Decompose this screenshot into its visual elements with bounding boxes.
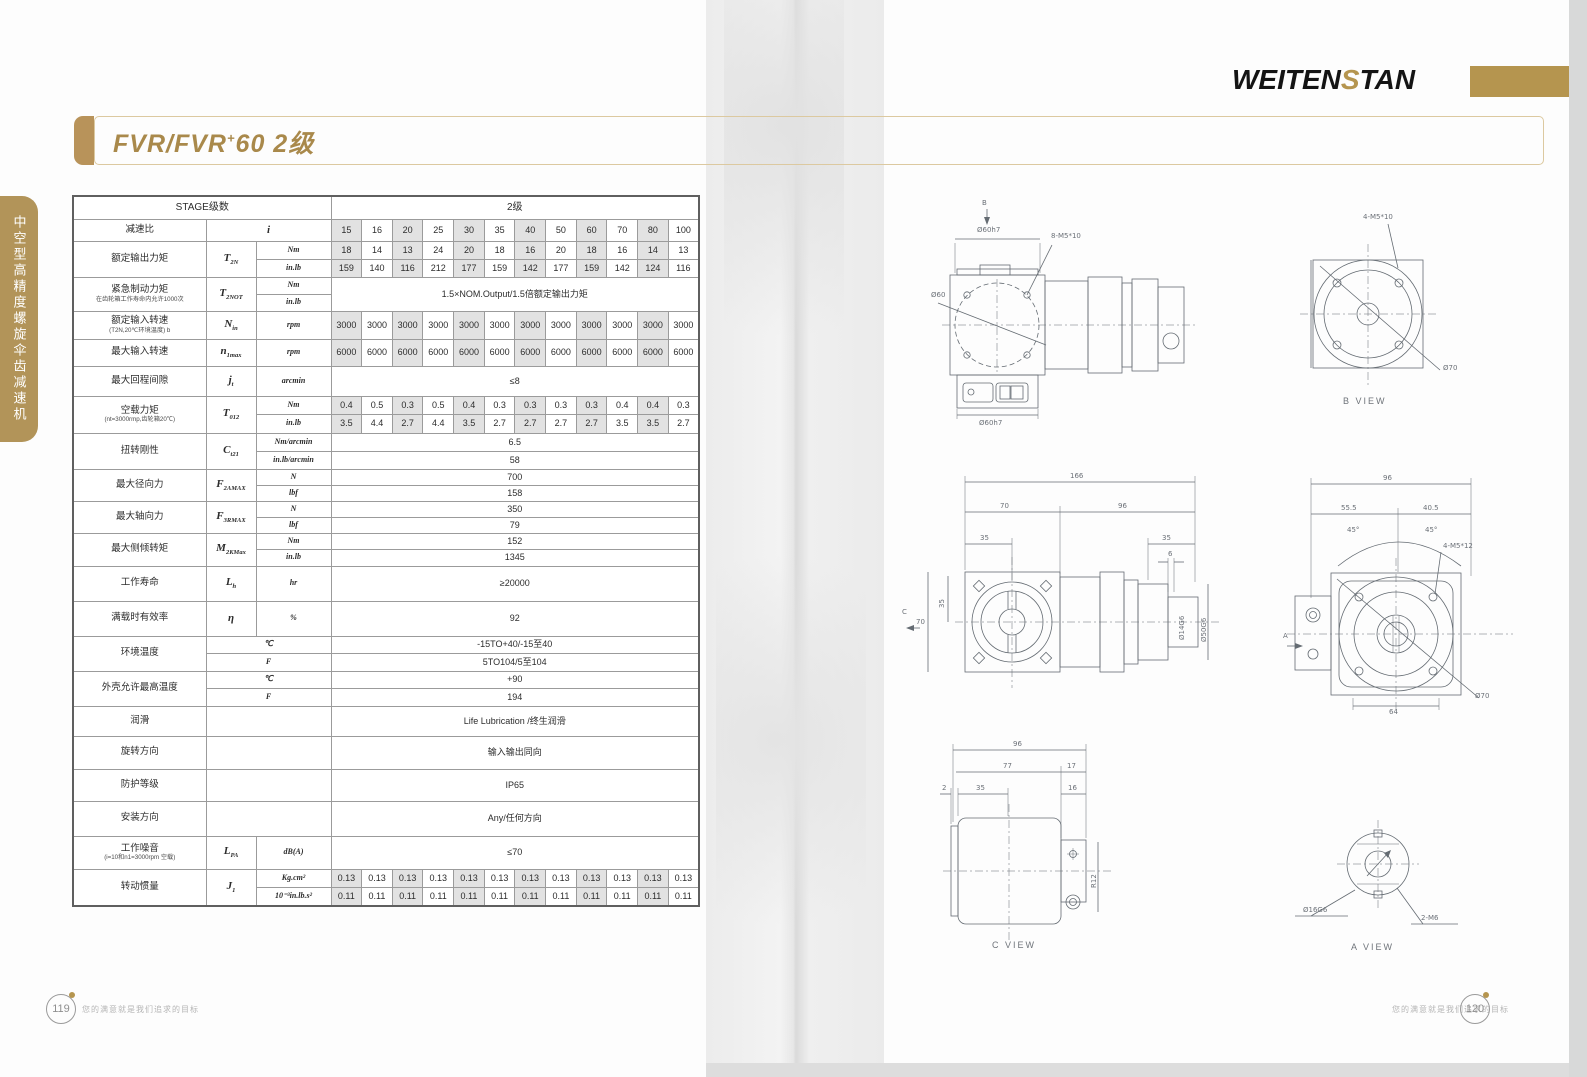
title-accent-bar xyxy=(74,116,94,165)
title-box: FVR/FVR+60 2级 xyxy=(94,116,1544,165)
cell-lbl: 外壳允许最高温度 xyxy=(73,671,206,706)
drawing-side-view: B Ø60h7 8-M5*10 Ø60 Ø60h7 xyxy=(930,195,1260,435)
cell-lbl: 减速比 xyxy=(73,219,206,241)
dia-label: Ø50G6 xyxy=(1200,618,1208,642)
dim-label: 17 xyxy=(1067,762,1076,770)
dim-label: 40.5 xyxy=(1423,504,1439,512)
cell-val: 0.3 xyxy=(576,396,607,414)
cell-val: 0.13 xyxy=(362,869,393,887)
cell-unit: % xyxy=(256,601,331,636)
cell-val: 0.11 xyxy=(576,887,607,906)
cell-unit: rpm xyxy=(256,339,331,366)
cell-val: 2.7 xyxy=(392,414,423,433)
cell-val: 0.13 xyxy=(638,869,669,887)
cell-val: 6000 xyxy=(392,339,423,366)
cell-lbl: 安装方向 xyxy=(73,801,206,836)
cell-val: 142 xyxy=(607,259,638,277)
cell-val: 0.3 xyxy=(515,396,546,414)
cell-val: 0.13 xyxy=(607,869,638,887)
cell-sym: LPA xyxy=(206,836,256,869)
cell-lbl: 最大回程间隙 xyxy=(73,366,206,396)
cell-val: 0.13 xyxy=(331,869,362,887)
cell-unit: lbf xyxy=(256,517,331,533)
cell-unit: Nm xyxy=(256,277,331,294)
cell-val: 20 xyxy=(392,219,423,241)
cell-empty xyxy=(206,769,331,801)
catalog-page: WEITENSTAN FVR/FVR+60 2级 中空型高精度螺旋伞齿减速机 S… xyxy=(0,0,1587,1077)
cell-val: 2.7 xyxy=(484,414,515,433)
drawing-c-view: 96 77 17 2 35 16 R12 C VIEW xyxy=(918,730,1183,962)
cell-empty xyxy=(206,736,331,769)
cell-sym: Lh xyxy=(206,566,256,601)
cell-val: 0.11 xyxy=(362,887,393,906)
cell-val: 14 xyxy=(362,241,393,259)
drawing-b-view: 4-M5*10 Ø70 B VIEW xyxy=(1288,212,1513,412)
cell-val: 18 xyxy=(576,241,607,259)
drawing-dimension-view: 166 70 96 35 35 6 C 70 35 Ø14G6 Ø50G6 xyxy=(900,462,1245,712)
cell-unit: arcmin xyxy=(256,366,331,396)
cell-merged: 1345 xyxy=(331,549,699,566)
cell-val: 0.3 xyxy=(392,396,423,414)
cell-merged: Life Lubrication /终生润滑 xyxy=(331,706,699,736)
cell-val: 0.13 xyxy=(454,869,485,887)
cell-val: 0.4 xyxy=(638,396,669,414)
footer-slogan-left: 您的满意就是我们追求的目标 xyxy=(82,1004,199,1015)
bolt-spec-label: 4-M5*10 xyxy=(1363,213,1393,221)
cell-val: 16 xyxy=(515,241,546,259)
cell-val: 3000 xyxy=(638,311,669,339)
cell-unit: in.lb xyxy=(256,259,331,277)
cell-unit: lbf xyxy=(256,485,331,501)
cell-val: 0.13 xyxy=(668,869,699,887)
cell-merged: 输入输出同向 xyxy=(331,736,699,769)
cell-sym: Nin xyxy=(206,311,256,339)
dim-label: 70 xyxy=(1000,502,1009,510)
cell-merged: ≤70 xyxy=(331,836,699,869)
cell-unit: in.lb xyxy=(256,414,331,433)
cell-val: 16 xyxy=(607,241,638,259)
cell-lbl: 最大侧倾转矩 xyxy=(73,533,206,566)
dim-label: 96 xyxy=(1118,502,1127,510)
cell-unit: F xyxy=(206,688,331,706)
cell-merged: Any/任何方向 xyxy=(331,801,699,836)
cell-val: 0.13 xyxy=(515,869,546,887)
page-number-dot xyxy=(1483,992,1489,998)
cell-merged: 1.5×NOM.Output/1.5倍额定输出力矩 xyxy=(331,277,699,311)
cell-sym: F2AMAX xyxy=(206,469,256,501)
cell-val: 3000 xyxy=(392,311,423,339)
dim-label: 77 xyxy=(1003,762,1012,770)
cell-val: 6000 xyxy=(423,339,454,366)
cell-val: 3.5 xyxy=(454,414,485,433)
dim-label: 64 xyxy=(1389,708,1398,716)
cell-unit: Nm/arcmin xyxy=(256,433,331,451)
logo-text: WEITEN xyxy=(1232,64,1341,95)
angle-label: 45° xyxy=(1347,526,1359,534)
cell-val: 6000 xyxy=(484,339,515,366)
cell-val: 20 xyxy=(546,241,577,259)
cell-val: 3.5 xyxy=(638,414,669,433)
cell-lbl: 工作寿命 xyxy=(73,566,206,601)
cell-lbl: 转动惯量 xyxy=(73,869,206,906)
sidebar-vertical-label: 中空型高精度螺旋伞齿减速机 xyxy=(10,215,29,423)
cell-val: 60 xyxy=(576,219,607,241)
cell-merged: 5TO104/5至104 xyxy=(331,653,699,671)
cell-val: 0.4 xyxy=(607,396,638,414)
cell-sym: J1 xyxy=(206,869,256,906)
cell-val: 3000 xyxy=(607,311,638,339)
cell-merged: 79 xyxy=(331,517,699,533)
cell-unit: Nm xyxy=(256,533,331,549)
cell-val: 0.13 xyxy=(423,869,454,887)
cell-val: 0.13 xyxy=(546,869,577,887)
cell-val: 70 xyxy=(607,219,638,241)
cell-val: 0.4 xyxy=(454,396,485,414)
brand-logo: WEITENSTAN xyxy=(1232,64,1415,96)
footer-slogan-right: 您的满意就是我们追求的目标 xyxy=(1392,1004,1509,1015)
cell-merged: 700 xyxy=(331,469,699,485)
cell-val: 14 xyxy=(638,241,669,259)
cell-lbl: 最大径向力 xyxy=(73,469,206,501)
page-number-right: 120 xyxy=(1460,994,1490,1024)
cell-val: 25 xyxy=(423,219,454,241)
dia-label: Ø70 xyxy=(1475,692,1489,700)
cell-val: 0.13 xyxy=(392,869,423,887)
cell-val: 6000 xyxy=(546,339,577,366)
page-number-dot xyxy=(69,992,75,998)
cell-merged: -15TO+40/-15至40 xyxy=(331,636,699,653)
dim-label: 35 xyxy=(1162,534,1171,542)
cell-val: 50 xyxy=(546,219,577,241)
bolt-spec-label: 2-M6 xyxy=(1421,914,1438,922)
sidebar-category-tab: 中空型高精度螺旋伞齿减速机 xyxy=(0,196,38,442)
cell-lbl: 满载时有效率 xyxy=(73,601,206,636)
cell-sym: T2N xyxy=(206,241,256,277)
dim-label: 35 xyxy=(980,534,989,542)
drawing-a-view: Ø16G6 2-M6 A VIEW xyxy=(1293,806,1518,961)
cell-val: 6000 xyxy=(607,339,638,366)
cell-val: 0.11 xyxy=(515,887,546,906)
cell-sym: η xyxy=(206,601,256,636)
cell-val: 159 xyxy=(576,259,607,277)
dim-label: Ø60h7 xyxy=(977,226,1000,234)
cell-val: 0.13 xyxy=(576,869,607,887)
page-title: FVR/FVR+60 2级 xyxy=(113,124,314,160)
cell-val: 24 xyxy=(423,241,454,259)
cell-merged: 194 xyxy=(331,688,699,706)
cell-val: 0.11 xyxy=(638,887,669,906)
logo-text: TAN xyxy=(1360,64,1415,95)
cell-unit: Kg.cm² xyxy=(256,869,331,887)
cell-unit: hr xyxy=(256,566,331,601)
cell-val: 0.11 xyxy=(546,887,577,906)
cell-val: 116 xyxy=(668,259,699,277)
cell-val: 3000 xyxy=(454,311,485,339)
view-direction-label: C xyxy=(902,608,907,616)
view-caption: C VIEW xyxy=(992,940,1036,950)
cell-merged: 158 xyxy=(331,485,699,501)
page-bottom-edge xyxy=(706,1063,1587,1077)
dim-label: 166 xyxy=(1070,472,1083,480)
cell-merged: IP65 xyxy=(331,769,699,801)
cell-empty xyxy=(206,801,331,836)
cell-val: 6000 xyxy=(668,339,699,366)
cell-unit: dB(A) xyxy=(256,836,331,869)
cell-merged: 350 xyxy=(331,501,699,517)
cell-val: 18 xyxy=(484,241,515,259)
cell-val: 3000 xyxy=(331,311,362,339)
cell-val: 0.4 xyxy=(331,396,362,414)
cell-val: 124 xyxy=(638,259,669,277)
cell-unit: ℃ xyxy=(206,636,331,653)
cell-sym: M2KMax xyxy=(206,533,256,566)
drawing-front-view: 96 55.5 40.5 45° 45° 4-M5*12 Ø70 64 A xyxy=(1283,468,1523,720)
cell-sym: T012 xyxy=(206,396,256,433)
cell-val: 13 xyxy=(668,241,699,259)
cell-val: 6000 xyxy=(638,339,669,366)
cell-val: 3.5 xyxy=(607,414,638,433)
angle-label: 45° xyxy=(1425,526,1437,534)
cell-val: 20 xyxy=(454,241,485,259)
cell-val: 3000 xyxy=(668,311,699,339)
cell-val: 2.7 xyxy=(515,414,546,433)
cell-lbl: 额定输入转速(T2N,20℃环境温度) b xyxy=(73,311,206,339)
spec-table: STAGE级数2级减速比i1516202530354050607080100额定… xyxy=(72,195,700,907)
cell-lbl: 润滑 xyxy=(73,706,206,736)
cell-lbl: 环境温度 xyxy=(73,636,206,671)
cell-val: 40 xyxy=(515,219,546,241)
cell-val: 0.13 xyxy=(484,869,515,887)
cell-merged: 152 xyxy=(331,533,699,549)
logo-gold-block xyxy=(1470,66,1569,97)
cell-val: 3000 xyxy=(515,311,546,339)
view-direction-label: A xyxy=(1283,632,1288,640)
dim-label: 70 xyxy=(916,618,925,626)
cell-val: 18 xyxy=(331,241,362,259)
cell-val: 0.3 xyxy=(484,396,515,414)
cell-val: 0.5 xyxy=(362,396,393,414)
cell-lbl: 防护等级 xyxy=(73,769,206,801)
cell-merged: +90 xyxy=(331,671,699,688)
cell-lbl: 最大轴向力 xyxy=(73,501,206,533)
cell-val: 0.11 xyxy=(607,887,638,906)
bolt-spec-label: 8-M5*10 xyxy=(1051,232,1081,240)
cell-val: 6000 xyxy=(515,339,546,366)
cell-val: 15 xyxy=(331,219,362,241)
dim-label: 6 xyxy=(1168,550,1172,558)
dim-label: 55.5 xyxy=(1341,504,1357,512)
cell-val: 3000 xyxy=(484,311,515,339)
dim-label: 35 xyxy=(938,599,946,608)
cell-val: 212 xyxy=(423,259,454,277)
bolt-spec-label: 4-M5*12 xyxy=(1443,542,1473,550)
cell-unit: F xyxy=(206,653,331,671)
cell-val: 6000 xyxy=(454,339,485,366)
cell-val: 6000 xyxy=(331,339,362,366)
cell-val: 0.11 xyxy=(392,887,423,906)
cell-val: 0.3 xyxy=(668,396,699,414)
cell-empty xyxy=(206,706,331,736)
cell-val: 35 xyxy=(484,219,515,241)
cell-val: 0.11 xyxy=(331,887,362,906)
cell-val: 4.4 xyxy=(362,414,393,433)
cell-val: 159 xyxy=(331,259,362,277)
cell-sym: Ct21 xyxy=(206,433,256,469)
cell-unit: N xyxy=(256,501,331,517)
view-caption: B VIEW xyxy=(1343,396,1387,406)
cell-unit: in.lb xyxy=(256,294,331,311)
dia-label: Ø16G6 xyxy=(1303,906,1327,914)
cell-unit: rpm xyxy=(256,311,331,339)
cell-lbl: 空载力矩(nt=3000rmp,齿轮箱20℃) xyxy=(73,396,206,433)
cell-merged: 6.5 xyxy=(331,433,699,451)
view-caption: A VIEW xyxy=(1351,942,1394,952)
cell-sym: i xyxy=(206,219,331,241)
cell-val: 3000 xyxy=(546,311,577,339)
cell-unit: Nm xyxy=(256,241,331,259)
cell-unit: 10⁻³in.lb.s² xyxy=(256,887,331,906)
cell-val: 0.11 xyxy=(484,887,515,906)
cell-val: 80 xyxy=(638,219,669,241)
cell-val: 0.3 xyxy=(546,396,577,414)
cell-unit: ℃ xyxy=(206,671,331,688)
page-right-edge xyxy=(1569,0,1587,1077)
cell-unit: Nm xyxy=(256,396,331,414)
dia-label: Ø70 xyxy=(1443,364,1457,372)
cell-val: 177 xyxy=(454,259,485,277)
dim-label: 96 xyxy=(1383,474,1392,482)
dim-label: 2 xyxy=(942,784,946,792)
dim-label: 35 xyxy=(976,784,985,792)
dia-label: Ø60 xyxy=(931,291,945,299)
cell-val: 0.11 xyxy=(423,887,454,906)
cell-val: 6000 xyxy=(576,339,607,366)
dim-label: R12 xyxy=(1090,874,1098,888)
cell-val: 2.7 xyxy=(576,414,607,433)
cell-val: 3000 xyxy=(576,311,607,339)
cell-val: 177 xyxy=(546,259,577,277)
cell-lbl: 扭转刚性 xyxy=(73,433,206,469)
cell-lbl: 紧急制动力矩在齿轮箱工作寿命内允许1000次 xyxy=(73,277,206,311)
cell-val: 140 xyxy=(362,259,393,277)
cell-val: 142 xyxy=(515,259,546,277)
cell-val: 3000 xyxy=(362,311,393,339)
cell-hdr: 2级 xyxy=(331,196,699,219)
cell-merged: 92 xyxy=(331,601,699,636)
cell-val: 3000 xyxy=(423,311,454,339)
dim-label: 16 xyxy=(1068,784,1077,792)
cell-val: 159 xyxy=(484,259,515,277)
cell-merged: 58 xyxy=(331,451,699,469)
view-direction-label: B xyxy=(982,199,987,207)
cell-val: 0.11 xyxy=(668,887,699,906)
cell-unit: in.lb xyxy=(256,549,331,566)
cell-val: 0.11 xyxy=(454,887,485,906)
cell-lbl: 旋转方向 xyxy=(73,736,206,769)
dim-label: Ø60h7 xyxy=(979,419,1002,427)
cell-val: 16 xyxy=(362,219,393,241)
cell-val: 6000 xyxy=(362,339,393,366)
cell-val: 4.4 xyxy=(423,414,454,433)
cell-val: 116 xyxy=(392,259,423,277)
cell-sym: jt xyxy=(206,366,256,396)
cell-sym: T2NOT xyxy=(206,277,256,311)
logo-gold-s: S xyxy=(1341,64,1360,95)
cell-merged: ≥20000 xyxy=(331,566,699,601)
page-number-left: 119 xyxy=(46,994,76,1024)
dim-label: 96 xyxy=(1013,740,1022,748)
cell-sym: F3RMAX xyxy=(206,501,256,533)
cell-val: 3.5 xyxy=(331,414,362,433)
cell-unit: in.lb/arcmin xyxy=(256,451,331,469)
cell-val: 100 xyxy=(668,219,699,241)
cell-val: 2.7 xyxy=(546,414,577,433)
cell-val: 0.5 xyxy=(423,396,454,414)
cell-val: 2.7 xyxy=(668,414,699,433)
cell-val: 30 xyxy=(454,219,485,241)
cell-unit: N xyxy=(256,469,331,485)
cell-sym: n1max xyxy=(206,339,256,366)
dia-label: Ø14G6 xyxy=(1178,616,1186,640)
cell-merged: ≤8 xyxy=(331,366,699,396)
cell-val: 13 xyxy=(392,241,423,259)
cell-lbl: 工作噪音(i=10和n1=3000rpm 空载) xyxy=(73,836,206,869)
cell-lbl: 最大输入转速 xyxy=(73,339,206,366)
cell-lbl: 额定输出力矩 xyxy=(73,241,206,277)
cell-hdr: STAGE级数 xyxy=(73,196,331,219)
